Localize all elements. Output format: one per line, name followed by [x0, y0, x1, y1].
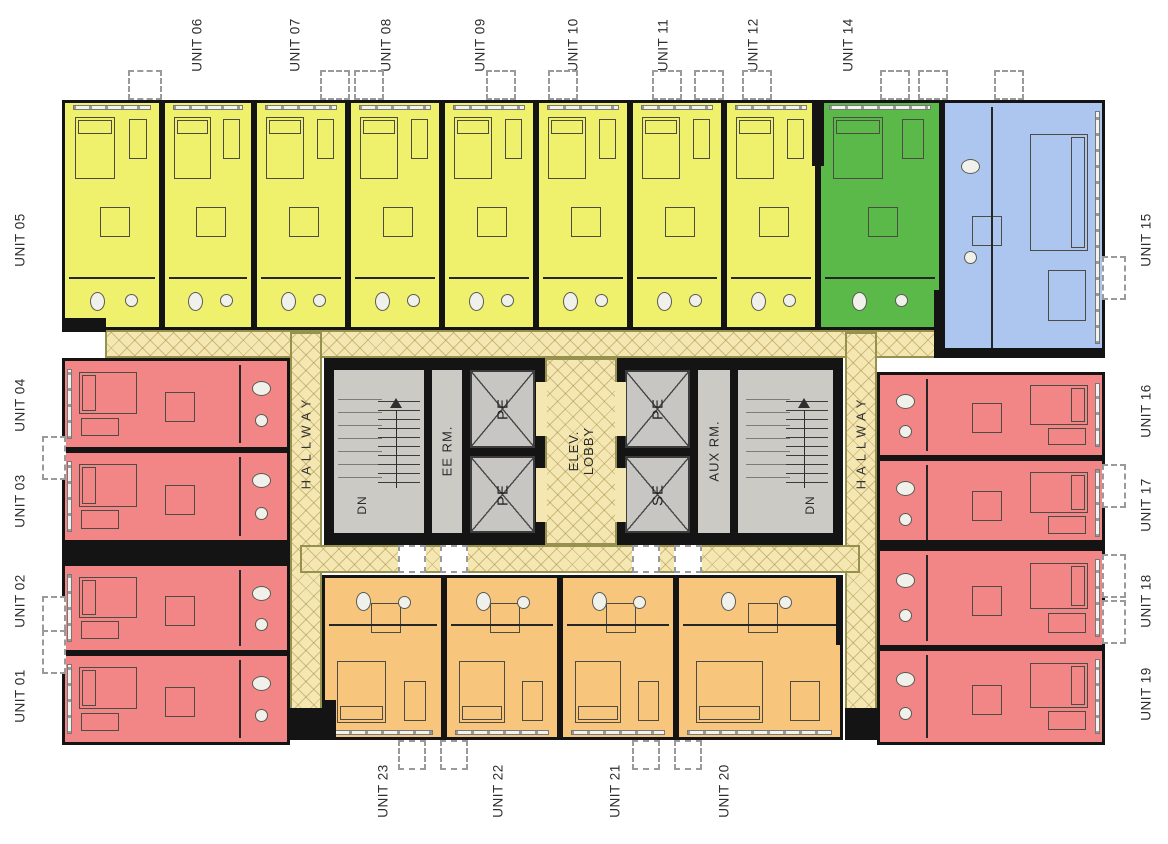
ee-room-label: EE RM. [440, 426, 455, 477]
bathroom-wall [69, 277, 155, 279]
bathroom-wall [926, 465, 928, 541]
table [371, 603, 401, 633]
wardrobe [505, 119, 522, 159]
table [972, 403, 1002, 433]
table [196, 207, 226, 237]
bed [360, 117, 398, 179]
sink [220, 294, 233, 307]
bed-pillow [462, 706, 502, 720]
unit-01 [62, 653, 290, 745]
window [173, 105, 243, 110]
elevator-lobby-label: ELEV. LOBBY [566, 427, 596, 475]
sink [689, 294, 702, 307]
wardrobe [129, 119, 147, 159]
exterior-ledge-box [1102, 464, 1126, 508]
sink [964, 251, 977, 264]
window [829, 105, 931, 110]
bed-pillow [551, 120, 583, 134]
sink [125, 294, 138, 307]
window [1095, 383, 1100, 447]
window [687, 730, 832, 735]
bed-pillow [578, 706, 618, 720]
bathroom-wall [825, 277, 935, 279]
elevator-door-notch [615, 468, 626, 522]
wardrobe [81, 621, 119, 639]
toilet [592, 592, 607, 611]
window [571, 730, 665, 735]
exterior-ledge-box [632, 545, 660, 573]
toilet [563, 292, 578, 311]
wardrobe [317, 119, 334, 159]
stair-left: DN [334, 370, 424, 533]
hallway-top-strip [105, 330, 942, 358]
bathroom-wall [239, 570, 241, 646]
table [972, 491, 1002, 521]
bathroom-wall [239, 457, 241, 536]
table [748, 603, 778, 633]
unit-02-label: UNIT 02 [13, 574, 28, 628]
window [1095, 111, 1100, 344]
elevator-door-notch [536, 382, 547, 436]
unit-21 [560, 575, 676, 740]
unit-14-label: UNIT 14 [841, 18, 856, 72]
sink [779, 596, 792, 609]
table [165, 596, 195, 626]
wardrobe [599, 119, 616, 159]
unit-20-label: UNIT 20 [717, 764, 732, 818]
bed [79, 577, 137, 618]
elevator-door-notch [536, 468, 547, 522]
bed-pillow [82, 467, 96, 504]
unit-08-label: UNIT 08 [379, 18, 394, 72]
exterior-ledge-box [128, 70, 162, 100]
elevator-se: SE [625, 456, 690, 533]
window [735, 105, 807, 110]
sink [783, 294, 796, 307]
bed-pillow [1071, 666, 1085, 705]
elevator-se-label: SE [649, 483, 666, 505]
bed-pillow [1071, 137, 1085, 248]
sink [899, 513, 912, 526]
exterior-ledge-box [674, 545, 702, 573]
unit-18 [877, 548, 1105, 648]
bed-pillow [82, 580, 96, 615]
exterior-ledge-box [354, 70, 384, 100]
table [490, 603, 520, 633]
exterior-ledge-box [1102, 554, 1126, 598]
unit-03 [62, 450, 290, 543]
wardrobe [223, 119, 240, 159]
stair-up-arrow [798, 398, 810, 408]
table [383, 207, 413, 237]
toilet [657, 292, 672, 311]
window [1095, 659, 1100, 734]
table [972, 685, 1002, 715]
wardrobe [1048, 428, 1086, 445]
bathroom-wall [926, 379, 928, 451]
unit-06-label: UNIT 06 [190, 18, 205, 72]
wardrobe [81, 418, 119, 436]
table [165, 687, 195, 717]
unit-07 [254, 100, 348, 330]
bathroom-wall [449, 277, 529, 279]
exterior-ledge-box [398, 545, 426, 573]
exterior-ledge-box [694, 70, 724, 100]
wall-mass [836, 575, 843, 645]
sink [313, 294, 326, 307]
sink [633, 596, 646, 609]
stair-treads [378, 398, 420, 483]
table [606, 603, 636, 633]
elevator-door-notch [615, 382, 626, 436]
unit-02 [62, 563, 290, 653]
sink [398, 596, 411, 609]
stair-right-dn-label: DN [803, 495, 817, 514]
unit-20 [676, 575, 843, 740]
exterior-ledge-box [742, 70, 772, 100]
bed [266, 117, 304, 179]
wardrobe [1048, 613, 1086, 633]
aux-room: AUX RM. [698, 370, 730, 533]
sink [899, 425, 912, 438]
bathroom-wall [239, 660, 241, 738]
toilet [281, 292, 296, 311]
toilet [252, 473, 271, 488]
unit-01-label: UNIT 01 [13, 669, 28, 723]
core-left: DN EE RM. PE PE [324, 358, 545, 545]
toilet [896, 573, 915, 588]
exterior-ledge-box [42, 630, 66, 674]
sink [407, 294, 420, 307]
window [67, 664, 72, 734]
unit-22-label: UNIT 22 [491, 764, 506, 818]
table [571, 207, 601, 237]
sink [899, 707, 912, 720]
hallway-left-strip [290, 332, 322, 713]
bed-pillow [82, 375, 96, 411]
wardrobe [1048, 516, 1086, 534]
elevator-pe-2-label: PE [494, 483, 511, 505]
toilet [852, 292, 867, 311]
bed [454, 117, 492, 179]
aux-room-label: AUX RM. [707, 420, 722, 481]
unit-09-label: UNIT 09 [473, 18, 488, 72]
toilet [252, 381, 271, 396]
toilet [896, 672, 915, 687]
bed [75, 117, 115, 179]
toilet [896, 481, 915, 496]
toilet [476, 592, 491, 611]
wardrobe [81, 713, 119, 731]
bathroom-wall [329, 624, 437, 626]
exterior-ledge-box [42, 436, 66, 480]
table [289, 207, 319, 237]
elevator-lobby-label-line2: LOBBY [581, 427, 596, 475]
wardrobe [522, 681, 543, 721]
bed-pillow [340, 706, 383, 720]
unit-18-label: UNIT 18 [1139, 574, 1154, 628]
elevator-lobby-label-line1: ELEV. [566, 427, 581, 475]
elevator-pe-3: PE [625, 370, 690, 448]
wardrobe [902, 119, 924, 159]
wall-mass [877, 540, 1105, 548]
unit-16 [877, 372, 1105, 458]
bed [696, 661, 763, 723]
table [868, 207, 898, 237]
unit-23 [322, 575, 444, 740]
bed-pillow [457, 120, 489, 134]
exterior-ledge-box [398, 740, 426, 770]
bed [1030, 563, 1088, 609]
bed-pillow [836, 120, 880, 134]
unit-11-label: UNIT 11 [656, 19, 671, 72]
wall-mass [812, 100, 824, 166]
exterior-ledge-box [632, 740, 660, 770]
bed [79, 372, 137, 414]
bed [79, 464, 137, 507]
toilet [90, 292, 105, 311]
toilet [375, 292, 390, 311]
unit-04-label: UNIT 04 [13, 378, 28, 432]
bed [548, 117, 586, 179]
bed [642, 117, 680, 179]
bed [174, 117, 211, 179]
stair-treads-dashed [746, 388, 790, 478]
wardrobe [81, 510, 119, 529]
bed [1030, 663, 1088, 708]
elevator-pe-2: PE [470, 456, 535, 533]
wardrobe [787, 119, 804, 159]
hallway-left-label: HALLWAY [299, 395, 314, 490]
table [477, 207, 507, 237]
bed-pillow [739, 120, 771, 134]
bed [459, 661, 505, 723]
unit-19-label: UNIT 19 [1139, 667, 1154, 721]
bed [1030, 134, 1088, 251]
unit-05 [62, 100, 162, 330]
sink [255, 507, 268, 520]
unit-04 [62, 358, 290, 450]
sink [517, 596, 530, 609]
bed [1030, 385, 1088, 425]
wardrobe [790, 681, 820, 721]
window [641, 105, 713, 110]
sink [255, 709, 268, 722]
bed [1030, 472, 1088, 513]
unit-22 [444, 575, 560, 740]
window [333, 730, 433, 735]
bathroom-wall [543, 277, 623, 279]
bed-pillow [1071, 388, 1085, 422]
table [759, 207, 789, 237]
hallway-right-label: HALLWAY [854, 395, 869, 490]
wall-mass [845, 708, 877, 740]
bathroom-wall [731, 277, 811, 279]
unit-11 [630, 100, 724, 330]
window [455, 730, 549, 735]
bed-pillow [269, 120, 301, 134]
table [100, 207, 130, 237]
unit-19 [877, 648, 1105, 745]
sink [255, 414, 268, 427]
core-right: PE SE AUX RM. DN [617, 358, 843, 545]
bathroom-wall [637, 277, 717, 279]
bed [337, 661, 386, 723]
exterior-ledge-box [994, 70, 1024, 100]
window [67, 369, 72, 439]
window [265, 105, 337, 110]
unit-15-label: UNIT 15 [1139, 213, 1154, 267]
wall-mass [322, 700, 336, 740]
bathroom-wall [239, 365, 241, 443]
stair-treads [786, 398, 828, 483]
bed-pillow [1071, 566, 1085, 606]
bathroom-wall [451, 624, 553, 626]
unit-05-label: UNIT 05 [13, 213, 28, 267]
bed-pillow [82, 670, 96, 706]
bed-pillow [645, 120, 677, 134]
bed-pillow [363, 120, 395, 134]
window [453, 105, 525, 110]
bathroom-wall [926, 555, 928, 641]
sink [595, 294, 608, 307]
elevator-pe-3-label: PE [649, 398, 666, 420]
window [359, 105, 431, 110]
toilet [188, 292, 203, 311]
bathroom-wall [926, 655, 928, 738]
unit-17 [877, 458, 1105, 548]
window [67, 574, 72, 642]
unit-07-label: UNIT 07 [288, 18, 303, 72]
unit-06 [162, 100, 254, 330]
wardrobe [693, 119, 710, 159]
unit-15 [942, 100, 1105, 355]
wardrobe [404, 681, 426, 721]
table [972, 586, 1002, 616]
hallway-right-strip [845, 332, 877, 713]
table [972, 216, 1002, 246]
exterior-ledge-box [486, 70, 516, 100]
exterior-ledge-box [918, 70, 948, 100]
wardrobe [638, 681, 659, 721]
sink [899, 609, 912, 622]
bed [736, 117, 774, 179]
exterior-ledge-box [548, 70, 578, 100]
wardrobe [411, 119, 428, 159]
bathroom-wall [261, 277, 341, 279]
bed-pillow [699, 706, 760, 720]
unit-09 [442, 100, 536, 330]
bed [79, 667, 137, 709]
exterior-ledge-box [440, 740, 468, 770]
exterior-ledge-box [674, 740, 702, 770]
table [165, 392, 195, 422]
stair-rail [396, 410, 397, 488]
bathroom-wall [991, 107, 993, 348]
exterior-ledge-box [1102, 600, 1126, 644]
toilet [252, 676, 271, 691]
ee-room: EE RM. [432, 370, 462, 533]
toilet [356, 592, 371, 611]
wardrobe [1048, 270, 1086, 321]
sink [255, 618, 268, 631]
exterior-ledge-box [880, 70, 910, 100]
sink [895, 294, 908, 307]
stair-left-dn-label: DN [355, 495, 369, 514]
unit-10-label: UNIT 10 [566, 18, 581, 72]
elevator-pe-1-label: PE [494, 398, 511, 420]
bathroom-wall [355, 277, 435, 279]
unit-12-label: UNIT 12 [746, 18, 761, 72]
table [665, 207, 695, 237]
bed [833, 117, 883, 179]
unit-14 [818, 100, 942, 330]
bed-pillow [78, 120, 112, 134]
unit-03-label: UNIT 03 [13, 474, 28, 528]
toilet [252, 586, 271, 601]
unit-08 [348, 100, 442, 330]
stair-rail [804, 410, 805, 488]
bathroom-wall [169, 277, 247, 279]
window [67, 461, 72, 532]
bed-pillow [1071, 475, 1085, 510]
exterior-ledge-box [1102, 256, 1126, 300]
unit-10 [536, 100, 630, 330]
exterior-ledge-box [320, 70, 350, 100]
exterior-ledge-box [440, 545, 468, 573]
toilet [751, 292, 766, 311]
unit-16-label: UNIT 16 [1139, 384, 1154, 438]
bed [575, 661, 621, 723]
toilet [469, 292, 484, 311]
stair-right: DN [738, 370, 833, 533]
bathroom-wall [683, 624, 836, 626]
window [1095, 559, 1100, 637]
window [547, 105, 619, 110]
floor-plan: DN EE RM. PE PE PE SE AUX RM. DN [0, 0, 1168, 844]
bed-pillow [177, 120, 208, 134]
wall-mass [290, 708, 322, 740]
window [73, 105, 151, 110]
bathroom-wall [567, 624, 669, 626]
unit-12 [724, 100, 818, 330]
exterior-ledge-box [652, 70, 682, 100]
wardrobe [1048, 711, 1086, 730]
unit-21-label: UNIT 21 [608, 764, 623, 818]
toilet [721, 592, 736, 611]
unit-17-label: UNIT 17 [1139, 478, 1154, 532]
wall-mass [942, 348, 1105, 358]
sink [501, 294, 514, 307]
window [1095, 469, 1100, 537]
wall-mass [62, 543, 290, 563]
unit-23-label: UNIT 23 [376, 764, 391, 818]
toilet [961, 159, 980, 174]
stair-treads-dashed [338, 388, 382, 478]
wall-mass [62, 318, 106, 332]
stair-up-arrow [390, 398, 402, 408]
table [165, 485, 195, 515]
toilet [896, 394, 915, 409]
hallway-bottom-strip [300, 545, 860, 573]
elevator-pe-1: PE [470, 370, 535, 448]
